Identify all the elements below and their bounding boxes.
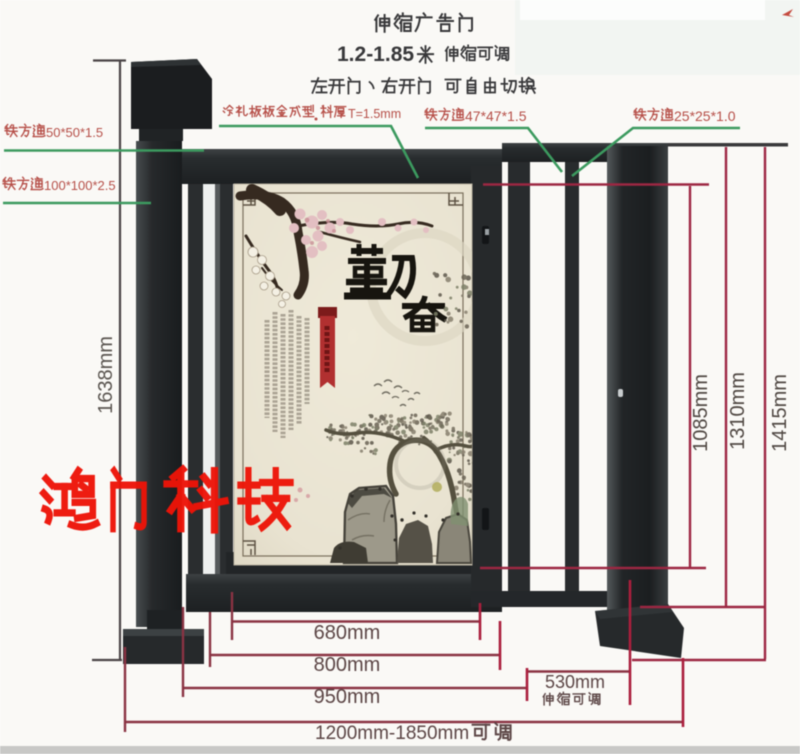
svg-text:1415mm: 1415mm <box>769 374 791 452</box>
svg-text:680mm: 680mm <box>314 622 381 644</box>
svg-text:47*47*1.5: 47*47*1.5 <box>465 108 527 124</box>
svg-text:1200mm-1850mm: 1200mm-1850mm <box>315 723 469 744</box>
svg-text:50*50*1.5: 50*50*1.5 <box>46 125 103 140</box>
svg-text:800mm: 800mm <box>314 654 381 676</box>
svg-text:T=1.5mm: T=1.5mm <box>348 107 401 121</box>
svg-text:530mm: 530mm <box>545 672 605 692</box>
svg-text:1.2-1.85: 1.2-1.85 <box>337 43 414 66</box>
svg-text:950mm: 950mm <box>314 686 381 708</box>
svg-text:1638mm: 1638mm <box>95 336 117 414</box>
svg-text:1310mm: 1310mm <box>727 372 749 450</box>
svg-text:25*25*1.0: 25*25*1.0 <box>674 108 736 124</box>
svg-text:100*100*2.5: 100*100*2.5 <box>44 178 116 193</box>
svg-text:1085mm: 1085mm <box>690 374 712 452</box>
